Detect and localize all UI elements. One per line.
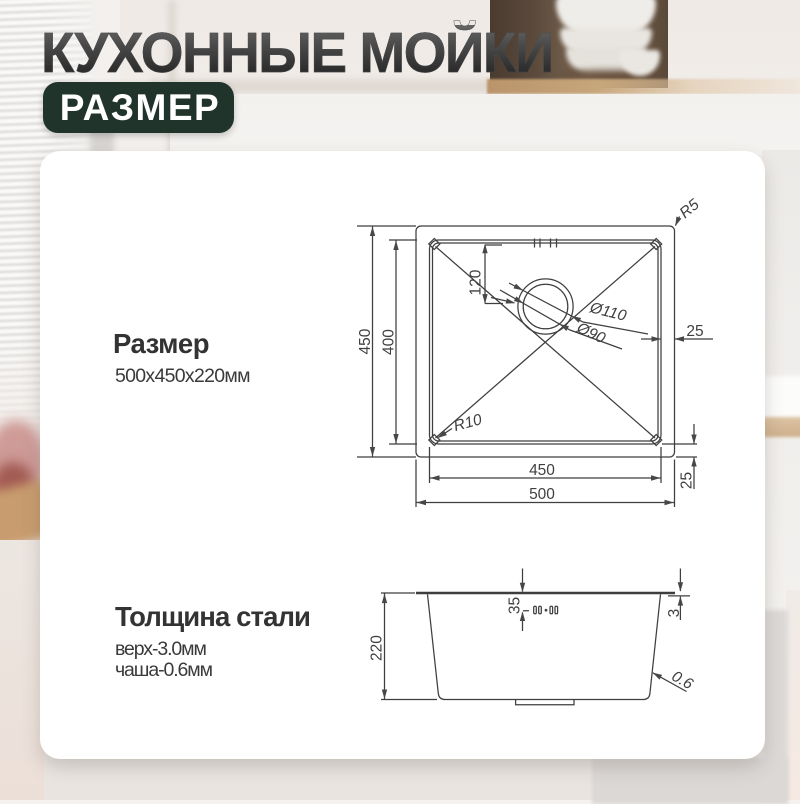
svg-text:400: 400 [381,329,398,355]
svg-text:R5: R5 [677,196,703,222]
svg-text:0.6: 0.6 [669,668,696,693]
svg-text:500: 500 [529,486,555,503]
svg-text:120: 120 [468,269,485,295]
svg-text:Ø110: Ø110 [587,299,628,325]
svg-text:Ø90: Ø90 [573,319,608,347]
svg-text:450: 450 [529,462,555,479]
svg-text:25: 25 [679,472,696,489]
svg-text:220: 220 [369,635,386,661]
svg-text:35: 35 [507,597,524,614]
svg-text:25: 25 [686,323,703,340]
svg-text:R10: R10 [452,411,484,435]
svg-text:450: 450 [357,328,374,354]
svg-text:3: 3 [666,609,683,618]
